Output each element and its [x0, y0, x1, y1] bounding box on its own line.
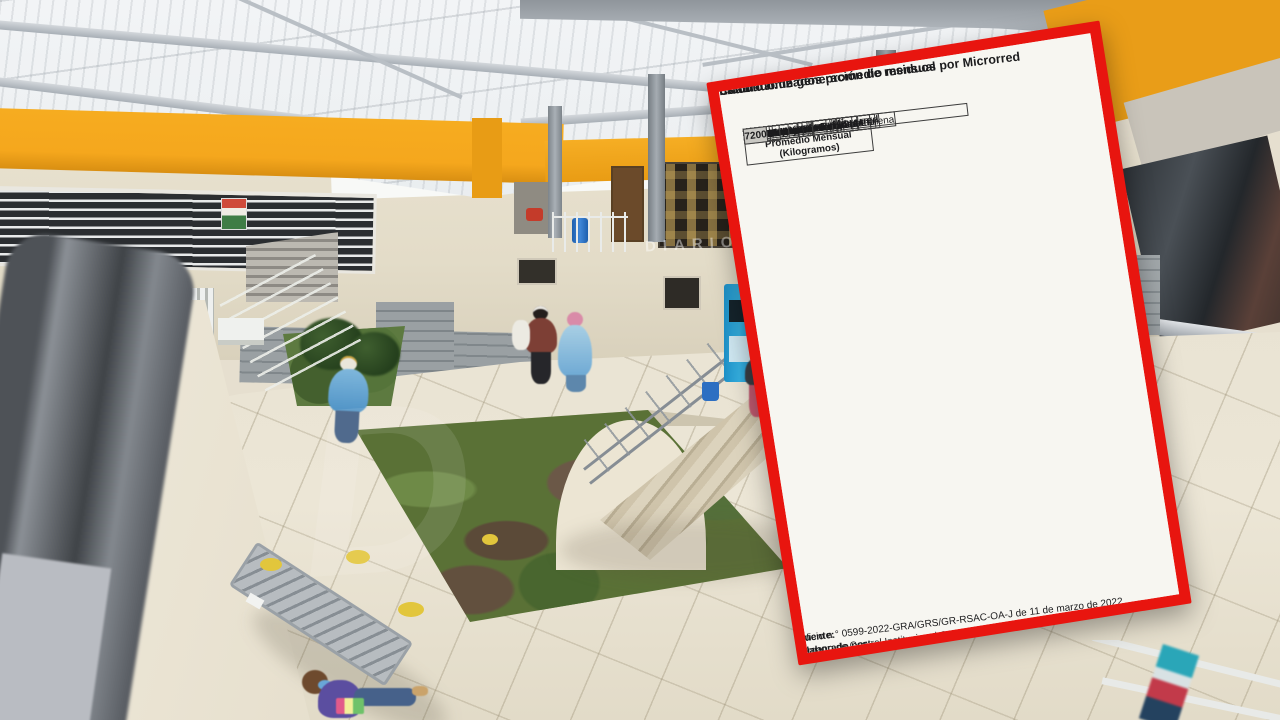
balcony-railing	[552, 212, 628, 252]
small-window	[663, 276, 701, 310]
total-value: 7200	[743, 126, 769, 145]
red-chair	[526, 208, 543, 221]
seated-person-bottom	[296, 662, 446, 720]
news-image: D DIARIO Cuadro n.° 2 Estimado de genera…	[0, 0, 1280, 720]
residuos-table: N° Microrred Generación de Residuos Prom…	[743, 85, 1124, 129]
bottom-right-structure	[1090, 640, 1280, 720]
white-table	[218, 318, 264, 345]
white-beam	[1101, 677, 1280, 720]
steel-column	[648, 74, 665, 242]
floor-marker	[260, 558, 282, 571]
sandal	[412, 686, 428, 696]
scanned-document: Cuadro n.° 2 Estimado de generación de r…	[718, 29, 1192, 666]
small-window	[517, 258, 557, 285]
rollup-banner	[1139, 644, 1199, 720]
wall-poster	[221, 198, 247, 230]
yellow-column-wrap	[472, 118, 502, 198]
colorful-booklet	[336, 698, 364, 714]
